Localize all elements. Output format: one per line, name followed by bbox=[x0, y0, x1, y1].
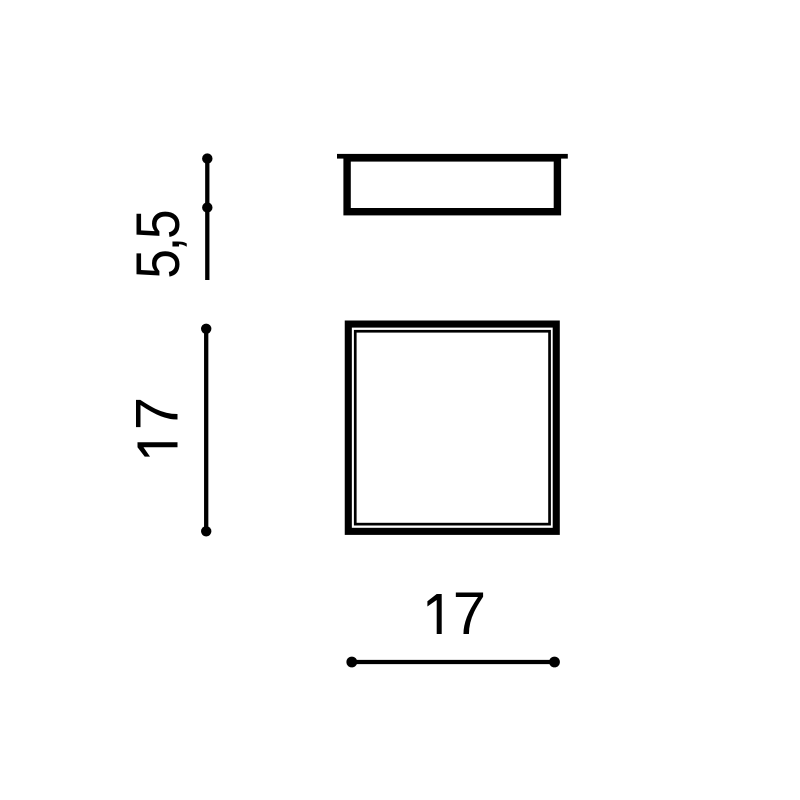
svg-text:7: 7 bbox=[453, 580, 486, 647]
svg-text:7: 7 bbox=[124, 397, 191, 430]
svg-text:5,5: 5,5 bbox=[125, 211, 193, 278]
